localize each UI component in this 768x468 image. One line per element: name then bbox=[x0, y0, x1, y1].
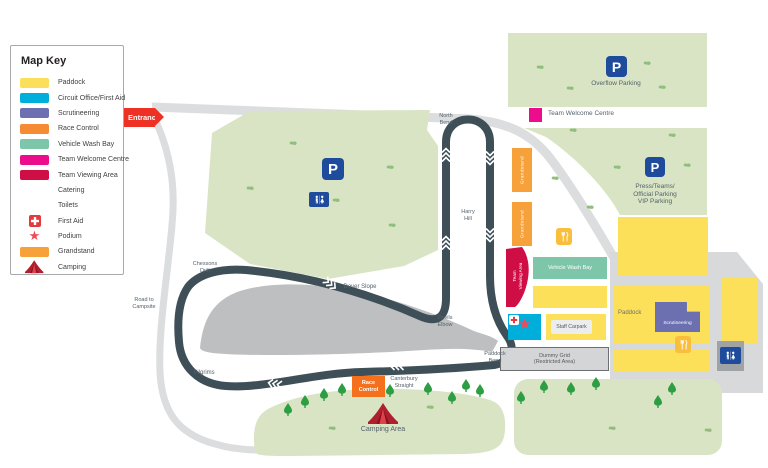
legend-label: First Aid bbox=[58, 218, 83, 225]
legend-label: Catering bbox=[58, 187, 84, 194]
legend-item: Toilets bbox=[20, 198, 123, 213]
label-paddock-bend: PaddockBend bbox=[477, 351, 513, 364]
map-key-panel: Map Key PaddockCircuit Office/First AidS… bbox=[10, 45, 124, 275]
paddock-block-3 bbox=[613, 350, 710, 372]
label-overflow-parking: Overflow Parking bbox=[578, 81, 654, 88]
label-dover-slope: Dover Slope bbox=[338, 284, 382, 291]
legend-label: Race Control bbox=[58, 125, 99, 132]
team-welcome-centre-marker bbox=[529, 108, 542, 122]
legend-item: ★Podium bbox=[20, 229, 123, 244]
circuit-map: Map Key PaddockCircuit Office/First AidS… bbox=[0, 0, 768, 468]
camping-icon bbox=[20, 260, 49, 274]
legend-item: Camping bbox=[20, 260, 123, 275]
legend-label: Team Welcome Centre bbox=[58, 156, 129, 163]
legend-swatch bbox=[20, 155, 49, 165]
parking-icon: P bbox=[322, 158, 344, 180]
label-paddock: Paddock bbox=[618, 310, 641, 317]
staff-carpark-label: Staff Carpark bbox=[556, 324, 586, 330]
race-control-line2: Control bbox=[359, 387, 379, 394]
label-chessons-drift: ChessonsDrift bbox=[183, 261, 227, 274]
track-chevron bbox=[391, 362, 404, 370]
legend-label: Toilets bbox=[58, 202, 78, 209]
legend-item: Catering bbox=[20, 183, 123, 198]
legend-items: PaddockCircuit Office/First AidScrutinee… bbox=[20, 75, 123, 275]
map-key-title: Map Key bbox=[21, 55, 123, 67]
dummy-grid-area: Dummy Grid (Restricted Area) bbox=[500, 347, 609, 371]
grandstand-label: Grandstand bbox=[512, 202, 532, 246]
dummy-grid-line2: (Restricted Area) bbox=[534, 359, 575, 366]
legend-swatch bbox=[20, 124, 49, 134]
legend-label: Paddock bbox=[58, 79, 85, 86]
grandstand-lower: Grandstand bbox=[512, 202, 532, 246]
legend-label: Scrutineering bbox=[58, 110, 99, 117]
label-camping-area: Camping Area bbox=[350, 427, 416, 434]
legend-label: Camping bbox=[58, 264, 86, 271]
legend-item: Team Welcome Centre bbox=[20, 152, 123, 167]
paddock-block-4 bbox=[722, 278, 757, 344]
legend-item: First Aid bbox=[20, 214, 123, 229]
toilets-icon bbox=[20, 201, 49, 211]
label-canterbury-straight: CanterburyStraight bbox=[378, 376, 430, 389]
paddock-block-2 bbox=[618, 217, 708, 275]
catering-icon bbox=[675, 336, 691, 353]
label-devils-elbow: DevilsElbow bbox=[426, 315, 464, 328]
entrance-label: Entrance bbox=[128, 113, 160, 122]
first-aid-icon bbox=[20, 215, 49, 227]
legend-item: Grandstand bbox=[20, 244, 123, 259]
legend-item: Vehicle Wash Bay bbox=[20, 137, 123, 152]
track-chevron bbox=[187, 309, 200, 324]
staff-carpark-label-box: Staff Carpark bbox=[551, 320, 592, 334]
label-road-to-campsite: Road toCampsite bbox=[122, 297, 166, 310]
catering-icon bbox=[556, 228, 572, 245]
toilets-icon bbox=[309, 192, 329, 207]
legend-label: Grandstand bbox=[58, 248, 95, 255]
legend-label: Team Viewing Area bbox=[58, 172, 118, 179]
entrance-arrow: Entrance bbox=[124, 108, 155, 127]
legend-label: Vehicle Wash Bay bbox=[58, 141, 114, 148]
grandstand-upper: Grandstand bbox=[512, 148, 532, 192]
parking-icon: P bbox=[645, 157, 665, 177]
label-press-vip-parking: Press/Teams/ Official Parking VIP Parkin… bbox=[618, 183, 692, 206]
legend-swatch bbox=[20, 170, 49, 180]
label-north-bend: NorthBend bbox=[428, 113, 464, 126]
vehicle-wash-bay-label: Vehicle Wash Bay bbox=[548, 265, 592, 272]
legend-label: Podium bbox=[58, 233, 82, 240]
podium-icon: ★ bbox=[20, 230, 49, 243]
parking-icon: P bbox=[606, 56, 627, 77]
legend-swatch bbox=[20, 93, 49, 103]
legend-label: Circuit Office/First Aid bbox=[58, 95, 125, 102]
toilets-icon bbox=[720, 347, 741, 364]
vehicle-wash-bay: Vehicle Wash Bay bbox=[533, 257, 607, 279]
label-harry-hill: HarryHill bbox=[450, 209, 486, 222]
legend-item: Team Viewing Area bbox=[20, 167, 123, 182]
legend-item: Scrutineering bbox=[20, 106, 123, 121]
legend-swatch bbox=[20, 139, 49, 149]
legend-swatch bbox=[20, 108, 49, 118]
paddock-block-1 bbox=[533, 286, 607, 308]
podium-star-icon: ★ bbox=[518, 317, 531, 332]
legend-swatch bbox=[20, 78, 49, 88]
label-pilgrims: Pilgrims bbox=[186, 370, 222, 377]
team-viewing-area-label: Team Viewing Area bbox=[512, 250, 524, 302]
grandstand-label: Grandstand bbox=[512, 148, 532, 192]
scrutineering-label: Scrutineering bbox=[655, 321, 700, 326]
label-team-welcome-centre: Team Welcome Centre bbox=[548, 111, 614, 118]
legend-item: Race Control bbox=[20, 121, 123, 136]
legend-swatch bbox=[20, 247, 49, 257]
legend-item: Paddock bbox=[20, 75, 123, 90]
legend-item: Circuit Office/First Aid bbox=[20, 90, 123, 105]
catering-icon bbox=[20, 184, 49, 196]
